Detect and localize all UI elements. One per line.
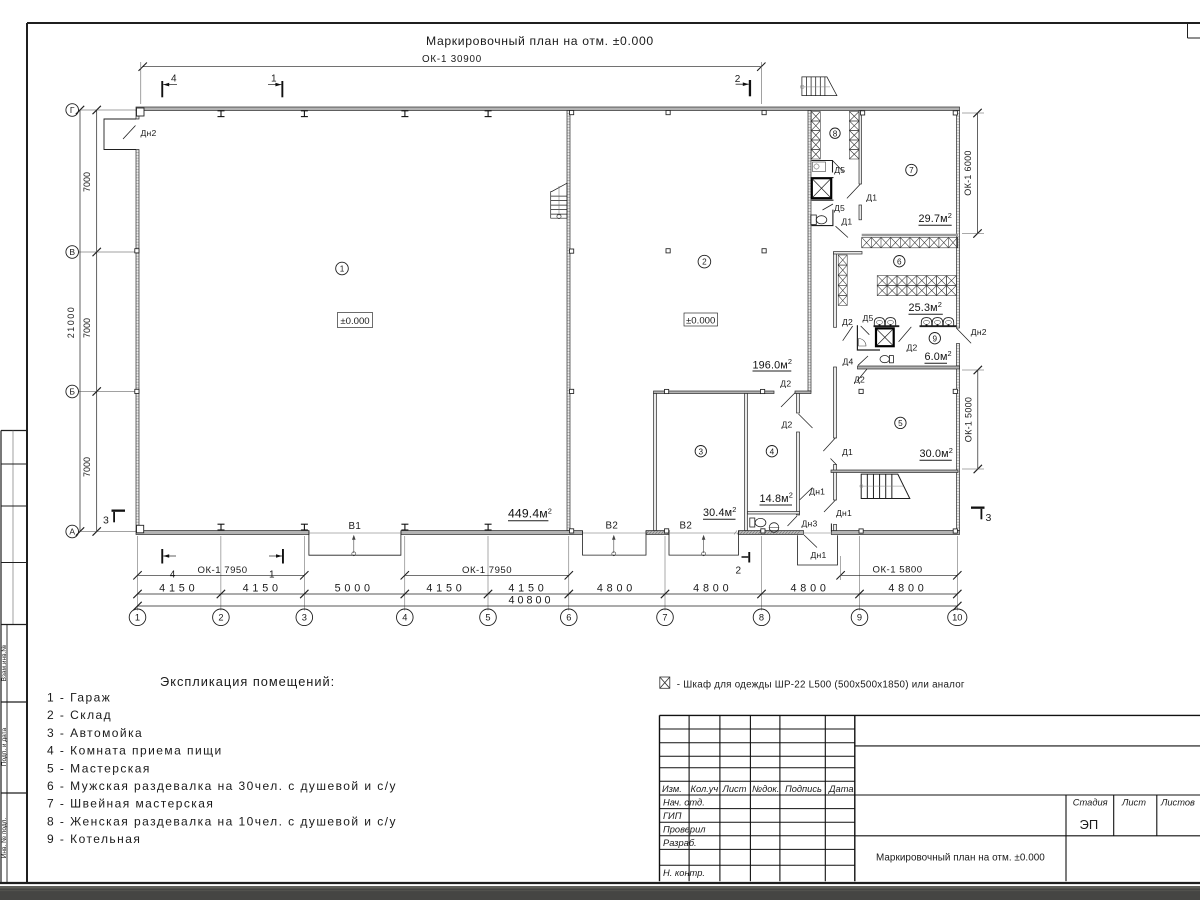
svg-text:5000: 5000 — [335, 582, 374, 594]
svg-text:7000: 7000 — [82, 457, 92, 477]
svg-text:Д1: Д1 — [842, 447, 853, 457]
svg-text:Дн1: Дн1 — [809, 487, 825, 497]
svg-text:Дн1: Дн1 — [811, 550, 827, 560]
svg-text:Изм.: Изм. — [662, 784, 682, 794]
svg-text:Взам.инв.№: Взам.инв.№ — [1, 645, 8, 682]
svg-text:Листов: Листов — [1160, 798, 1195, 808]
svg-text:6 - Мужская раздевалка на 30че: 6 - Мужская раздевалка на 30чел. с душев… — [47, 779, 397, 793]
svg-text:Стадия: Стадия — [1073, 798, 1108, 808]
svg-text:Лист: Лист — [722, 784, 747, 794]
svg-text:ОК-1 5800: ОК-1 5800 — [873, 564, 923, 575]
svg-text:№док.: №док. — [752, 784, 779, 794]
svg-text:40800: 40800 — [508, 595, 553, 607]
svg-text:7 - Швейная мастерская: 7 - Швейная мастерская — [47, 797, 214, 811]
svg-text:30.4м2: 30.4м2 — [703, 505, 736, 519]
svg-text:4150: 4150 — [243, 582, 282, 594]
svg-text:Д5: Д5 — [834, 165, 845, 175]
svg-text:Д2: Д2 — [907, 343, 918, 353]
svg-text:5: 5 — [898, 419, 903, 428]
svg-text:6: 6 — [897, 257, 902, 266]
svg-text:14.8м2: 14.8м2 — [760, 491, 793, 505]
svg-text:Д2: Д2 — [842, 317, 853, 327]
svg-text:1: 1 — [340, 265, 345, 274]
svg-text:6: 6 — [566, 613, 571, 623]
svg-text:9: 9 — [857, 613, 862, 623]
svg-text:3: 3 — [103, 515, 109, 527]
svg-text:5: 5 — [485, 613, 490, 623]
svg-text:7000: 7000 — [82, 172, 92, 192]
svg-text:±0.000: ±0.000 — [340, 316, 369, 327]
svg-text:4: 4 — [402, 613, 407, 623]
svg-text:2: 2 — [702, 258, 707, 267]
svg-text:7: 7 — [662, 613, 667, 623]
svg-text:196.0м2: 196.0м2 — [753, 357, 793, 371]
svg-text:Инв. № подл.: Инв. № подл. — [1, 818, 8, 859]
svg-text:4: 4 — [770, 447, 775, 456]
svg-text:3: 3 — [302, 613, 307, 623]
svg-text:4150: 4150 — [426, 582, 465, 594]
svg-text:8 - Женская раздевалка на 10че: 8 - Женская раздевалка на 10чел. с душев… — [47, 814, 397, 828]
svg-text:Лист: Лист — [1121, 798, 1146, 808]
svg-text:1 - Гараж: 1 - Гараж — [47, 691, 111, 705]
svg-text:4150: 4150 — [159, 582, 198, 594]
svg-text:9: 9 — [933, 334, 938, 343]
svg-text:30.0м2: 30.0м2 — [920, 446, 953, 460]
svg-text:Д4: Д4 — [843, 356, 854, 366]
svg-text:Разраб.: Разраб. — [663, 838, 697, 848]
svg-text:Дата: Дата — [828, 784, 854, 794]
svg-text:В2: В2 — [606, 521, 619, 532]
svg-text:4800: 4800 — [888, 582, 927, 594]
svg-text:25.3м2: 25.3м2 — [909, 300, 942, 314]
svg-text:Б: Б — [69, 387, 75, 397]
svg-text:ОК-1 7950: ОК-1 7950 — [198, 565, 248, 576]
svg-text:3: 3 — [699, 447, 704, 456]
svg-text:4 - Комната приема пищи: 4 - Комната приема пищи — [47, 744, 223, 758]
svg-text:Дн2: Дн2 — [141, 128, 157, 138]
svg-text:Экспликация помещений:: Экспликация помещений: — [160, 674, 335, 689]
svg-text:3: 3 — [986, 512, 992, 524]
svg-text:Дн3: Дн3 — [802, 519, 818, 529]
svg-text:4: 4 — [171, 73, 177, 84]
svg-text:Маркировочный план на отм. ±0.: Маркировочный план на отм. ±0.000 — [426, 34, 654, 48]
svg-text:8: 8 — [833, 129, 838, 138]
svg-text:А: А — [69, 527, 75, 537]
svg-text:2 - Склад: 2 - Склад — [47, 708, 112, 722]
svg-text:Г: Г — [70, 105, 75, 115]
svg-text:ГИП: ГИП — [663, 811, 682, 821]
svg-text:Дн1: Дн1 — [836, 508, 852, 518]
svg-text:Д2: Д2 — [780, 379, 791, 389]
svg-text:4800: 4800 — [790, 582, 829, 594]
svg-text:ОК-1 30900: ОК-1 30900 — [422, 54, 482, 65]
svg-text:±0.000: ±0.000 — [686, 316, 715, 327]
svg-text:4800: 4800 — [597, 582, 636, 594]
svg-text:21000: 21000 — [66, 306, 76, 339]
svg-text:8: 8 — [759, 613, 764, 623]
svg-text:10: 10 — [952, 613, 962, 623]
svg-text:ЭП: ЭП — [1080, 817, 1099, 832]
svg-text:Маркировочный план на отм. ±0.: Маркировочный план на отм. ±0.000 — [876, 853, 1045, 864]
svg-text:7000: 7000 — [82, 318, 92, 338]
svg-text:5 - Мастерская: 5 - Мастерская — [47, 761, 151, 775]
svg-text:7: 7 — [909, 166, 914, 175]
svg-text:1: 1 — [271, 73, 277, 84]
svg-text:2: 2 — [735, 74, 741, 85]
svg-text:29.7м2: 29.7м2 — [919, 211, 952, 225]
svg-text:Подп. и дата: Подп. и дата — [1, 727, 8, 766]
svg-text:2: 2 — [736, 566, 742, 577]
svg-text:ОК-1 7950: ОК-1 7950 — [462, 565, 512, 576]
svg-text:449.4м2: 449.4м2 — [508, 506, 552, 520]
svg-text:ОК-1 6000: ОК-1 6000 — [963, 150, 973, 195]
svg-text:4: 4 — [170, 570, 176, 581]
svg-text:Д2: Д2 — [782, 420, 793, 430]
svg-text:3 - Автомойка: 3 - Автомойка — [47, 726, 143, 740]
svg-text:Д1: Д1 — [866, 193, 877, 203]
svg-text:Проверил: Проверил — [663, 825, 706, 835]
svg-text:1: 1 — [269, 570, 275, 581]
svg-text:Д1: Д1 — [841, 216, 852, 226]
svg-text:ОК-1 5000: ОК-1 5000 — [964, 397, 974, 442]
svg-text:4800: 4800 — [693, 582, 732, 594]
svg-text:В1: В1 — [349, 521, 362, 532]
svg-text:В: В — [69, 247, 75, 257]
svg-text:- Шкаф для одежды ШР-22 L500 (: - Шкаф для одежды ШР-22 L500 (500x500x18… — [677, 679, 965, 690]
svg-text:Нач. отд.: Нач. отд. — [663, 797, 705, 807]
svg-text:Н. контр.: Н. контр. — [663, 868, 705, 878]
svg-text:Дн2: Дн2 — [971, 327, 987, 337]
svg-text:1: 1 — [135, 613, 140, 623]
svg-text:Подпись: Подпись — [785, 784, 822, 794]
svg-text:Д5: Д5 — [863, 313, 874, 323]
svg-text:2: 2 — [218, 613, 223, 623]
svg-text:9 - Котельная: 9 - Котельная — [47, 832, 141, 846]
svg-text:4150: 4150 — [508, 582, 547, 594]
svg-text:Кол.уч: Кол.уч — [691, 784, 719, 794]
svg-text:Д5: Д5 — [834, 203, 845, 213]
svg-text:Д2: Д2 — [854, 374, 865, 384]
svg-text:В2: В2 — [680, 521, 693, 532]
